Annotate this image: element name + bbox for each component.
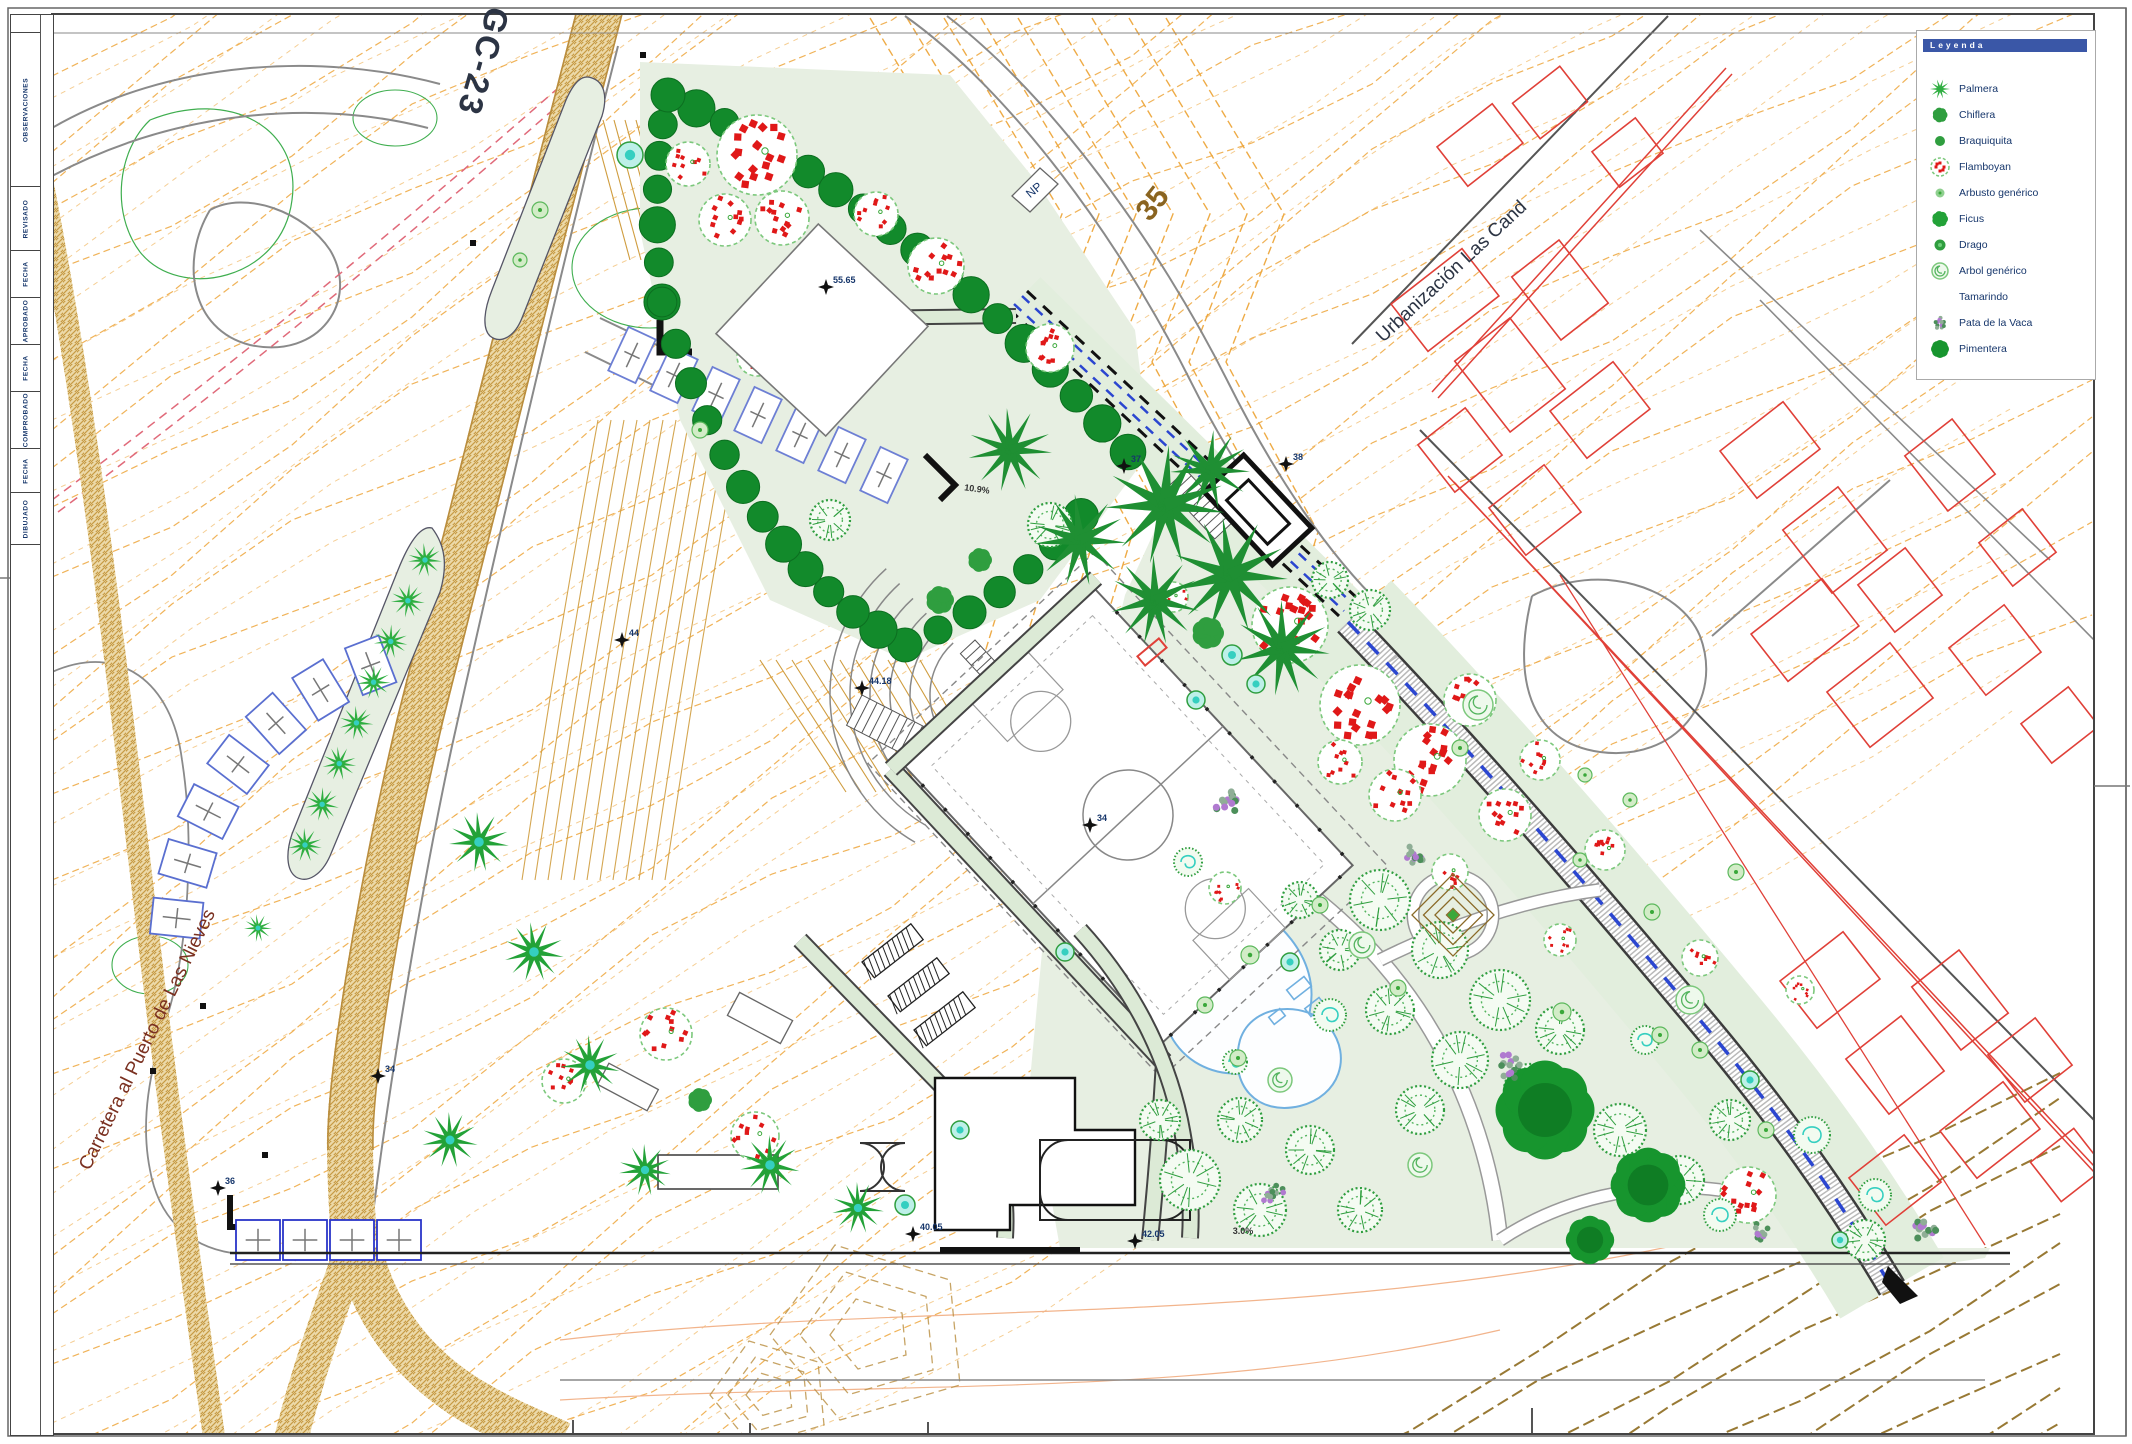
title-block-label: COMPROBADO xyxy=(22,393,29,447)
parking-bay xyxy=(608,327,655,383)
spot-elevation-label: 40.05 xyxy=(920,1222,943,1232)
legend-item-label: Pata de la Vaca xyxy=(1959,317,2032,329)
palmera-icon xyxy=(1927,77,1953,101)
generic-tree xyxy=(1845,1220,1885,1260)
legend-item-braquiquita: Braquiquita xyxy=(1927,129,2012,153)
legend-item-chiflera: Chiflera xyxy=(1927,103,1995,127)
title-block-cell-fecha1: FECHA xyxy=(11,251,40,298)
generic-tree xyxy=(810,500,850,540)
parking-bay xyxy=(158,839,216,888)
palm-tree xyxy=(244,914,272,942)
legend-item-tamarindo: Tamarindo xyxy=(1927,285,2008,309)
arbusto-icon xyxy=(1927,181,1953,205)
title-block-cell-aprobado: APROBADO xyxy=(11,298,40,345)
pata-icon xyxy=(1927,311,1953,335)
shrub xyxy=(1197,997,1213,1013)
spot-elevation-label: 38 xyxy=(1293,452,1303,462)
stair-block xyxy=(911,992,975,1048)
legend-item-arbusto: Arbusto genérico xyxy=(1927,181,2038,205)
legend-item-label: Palmera xyxy=(1959,83,1998,95)
flamboyan-tree xyxy=(1520,740,1560,780)
spot-elevation-label: 44 xyxy=(629,628,639,638)
palm-tree xyxy=(832,1182,883,1233)
plan-root: 55.6544.18373844343640.0542.0534 xyxy=(40,0,2105,1444)
cyan-shrub xyxy=(1187,691,1205,709)
generic-tree xyxy=(1350,870,1410,930)
cyan-shrub xyxy=(1247,675,1265,693)
shrub xyxy=(1312,897,1328,913)
cyan-shrub xyxy=(1832,1232,1848,1248)
flamboyan-tree xyxy=(854,192,898,236)
cyan-shrub xyxy=(1281,953,1299,971)
spot-elevation-label: 36 xyxy=(225,1176,235,1186)
generic-tree xyxy=(1286,1126,1334,1174)
shrub xyxy=(1573,853,1587,867)
legend-panel: Leyenda Palmera Chiflera Braquiquita Fla… xyxy=(1916,30,2096,380)
site-plan-svg: 55.6544.18373844343640.0542.0534 xyxy=(0,0,2132,1444)
title-block-label: REVISADO xyxy=(22,199,29,238)
spot-elevation-label: 44.18 xyxy=(869,676,892,686)
drago-icon xyxy=(1927,233,1953,257)
parking-bay xyxy=(207,735,269,794)
curly-tree xyxy=(1704,1199,1736,1231)
cyan-shrub xyxy=(951,1121,969,1139)
title-block-cell-fecha2: FECHA xyxy=(11,345,40,392)
curly-tree xyxy=(1174,848,1202,876)
spot-elevation-label: 34 xyxy=(385,1064,395,1074)
stair-block xyxy=(885,958,949,1014)
cyan-shrub xyxy=(895,1195,915,1215)
flamboyan-tree xyxy=(1585,830,1625,870)
shrub xyxy=(1230,1050,1246,1066)
spot-elevation: 36 xyxy=(210,1176,235,1196)
legend-item-drago: Drago xyxy=(1927,233,1988,257)
title-block-cell-dibujado: DIBUJADO xyxy=(11,493,40,545)
generic-tree xyxy=(1366,986,1414,1034)
pimentera-tree xyxy=(1566,1216,1614,1264)
shrub xyxy=(1623,793,1637,807)
arbol-generico-tree xyxy=(1349,932,1375,958)
flamboyan-tree xyxy=(908,238,964,294)
legend-item-label: Drago xyxy=(1959,239,1988,251)
cyan-shrub xyxy=(1056,943,1074,961)
title-block-divider xyxy=(40,15,41,1435)
cyan-shrub xyxy=(1222,645,1242,665)
curly-tree xyxy=(1314,999,1346,1031)
generic-tree xyxy=(1338,1188,1382,1232)
generic-tree xyxy=(1160,1150,1220,1210)
flamboyan-tree xyxy=(717,115,797,195)
chiflera-icon xyxy=(1927,103,1953,127)
generic-tree xyxy=(1282,882,1318,918)
generic-tree xyxy=(1140,1100,1180,1140)
generic-tree xyxy=(1432,1032,1488,1088)
arbol-generico-tree xyxy=(1676,986,1704,1014)
ficus-icon xyxy=(1927,207,1953,231)
flamboyan-tree xyxy=(699,194,751,246)
spot-elevation-label: 37 xyxy=(1131,454,1141,464)
spot-elevation: 38 xyxy=(1278,452,1303,472)
flamboyan-tree xyxy=(1318,740,1362,784)
legend-item-label: Arbusto genérico xyxy=(1959,187,2038,199)
flamboyan-tree xyxy=(1682,940,1718,976)
legend-item-label: Chiflera xyxy=(1959,109,1995,121)
legend-title: Leyenda xyxy=(1923,39,2087,52)
drawing-sheet: 55.6544.18373844343640.0542.0534 GC-23 N… xyxy=(0,0,2132,1444)
palm-tree xyxy=(422,1112,477,1167)
title-block: OBSERVACIONES REVISADO FECHA APROBADO FE… xyxy=(10,14,54,1436)
arbol-generico-tree xyxy=(1268,1068,1292,1092)
slope-label-2: 3.0% xyxy=(1233,1226,1254,1236)
flamboyan-tree xyxy=(1026,324,1074,372)
generic-tree xyxy=(1218,1098,1262,1142)
curly-tree xyxy=(1794,1117,1830,1153)
flamboyan-icon xyxy=(1927,155,1953,179)
shrub xyxy=(1390,980,1406,996)
braquiquita-icon xyxy=(1927,129,1953,153)
legend-item-ficus: Ficus xyxy=(1927,207,1984,231)
tamarindo-icon xyxy=(1927,285,1953,309)
legend-item-flamboyan: Flamboyan xyxy=(1927,155,2011,179)
title-block-label: OBSERVACIONES xyxy=(22,77,29,141)
stair-block xyxy=(859,924,923,980)
shrub xyxy=(692,422,708,438)
flamboyan-tree xyxy=(1544,924,1576,956)
legend-item-label: Pimentera xyxy=(1959,343,2007,355)
flamboyan-tree xyxy=(1369,769,1421,821)
shrub xyxy=(513,253,527,267)
title-block-cell-observaciones: OBSERVACIONES xyxy=(11,33,40,187)
legend-item-pata: Pata de la Vaca xyxy=(1927,311,2032,335)
title-block-cell-comprobado: COMPROBADO xyxy=(11,392,40,449)
legend-item-palmera: Palmera xyxy=(1927,77,1998,101)
legend-item-arbol: Arbol genérico xyxy=(1927,259,2027,283)
pimentera-tree xyxy=(1611,1148,1686,1223)
generic-tree xyxy=(1594,1104,1646,1156)
shrub xyxy=(1728,864,1744,880)
arbol-generico-tree xyxy=(1408,1153,1432,1177)
flamboyan-tree xyxy=(731,1112,779,1160)
flamboyan-tree xyxy=(640,1008,692,1060)
generic-tree xyxy=(1710,1100,1750,1140)
shrub xyxy=(532,202,548,218)
ficus-tree xyxy=(689,1088,712,1112)
flamboyan-tree xyxy=(1320,665,1400,745)
legend-item-label: Ficus xyxy=(1959,213,1984,225)
spot-elevation-label: 34 xyxy=(1097,813,1107,823)
cyan-shrub xyxy=(1741,1071,1759,1089)
cyan-shrub xyxy=(617,142,643,168)
title-block-cell-fecha3: FECHA xyxy=(11,449,40,493)
legend-item-pimentera: Pimentera xyxy=(1927,337,2007,361)
flamboyan-tree xyxy=(1786,976,1814,1004)
spot-elevation: 40.05 xyxy=(905,1222,943,1242)
legend-item-label: Flamboyan xyxy=(1959,161,2011,173)
arbol-icon xyxy=(1927,259,1953,283)
title-block-label: APROBADO xyxy=(22,300,29,343)
curly-tree xyxy=(1859,1179,1891,1211)
title-block-label: FECHA xyxy=(22,458,29,483)
title-block-cell-revisado: REVISADO xyxy=(11,187,40,251)
shrub xyxy=(1758,1122,1774,1138)
title-block-cell xyxy=(11,15,40,33)
flamboyan-tree xyxy=(666,142,710,186)
shrub xyxy=(1452,740,1468,756)
flamboyan-tree xyxy=(1432,854,1468,890)
shrub xyxy=(1692,1042,1708,1058)
title-block-label: FECHA xyxy=(22,261,29,286)
flamboyan-tree xyxy=(755,191,809,245)
generic-tree xyxy=(1312,562,1348,598)
spot-elevation-label: 55.65 xyxy=(833,275,856,285)
flamboyan-tree xyxy=(1209,872,1241,904)
generic-tree xyxy=(1350,590,1390,630)
pimentera-icon xyxy=(1927,337,1953,361)
parking-bay xyxy=(178,784,239,839)
shrub xyxy=(1578,768,1592,782)
shrub xyxy=(1652,1027,1668,1043)
shrub xyxy=(1644,904,1660,920)
generic-tree xyxy=(1396,1086,1444,1134)
shrub xyxy=(1241,946,1259,964)
shrub xyxy=(1553,1003,1571,1021)
title-block-label: DIBUJADO xyxy=(22,499,29,538)
legend-item-label: Tamarindo xyxy=(1959,291,2008,303)
spot-elevation-label: 42.05 xyxy=(1142,1229,1165,1239)
legend-item-label: Braquiquita xyxy=(1959,135,2012,147)
title-block-label: FECHA xyxy=(22,355,29,380)
parking-bay xyxy=(246,693,306,754)
flamboyan-tree xyxy=(1479,789,1531,841)
legend-item-label: Arbol genérico xyxy=(1959,265,2027,277)
generic-tree xyxy=(1470,970,1530,1030)
arbol-generico-tree xyxy=(1463,690,1493,720)
